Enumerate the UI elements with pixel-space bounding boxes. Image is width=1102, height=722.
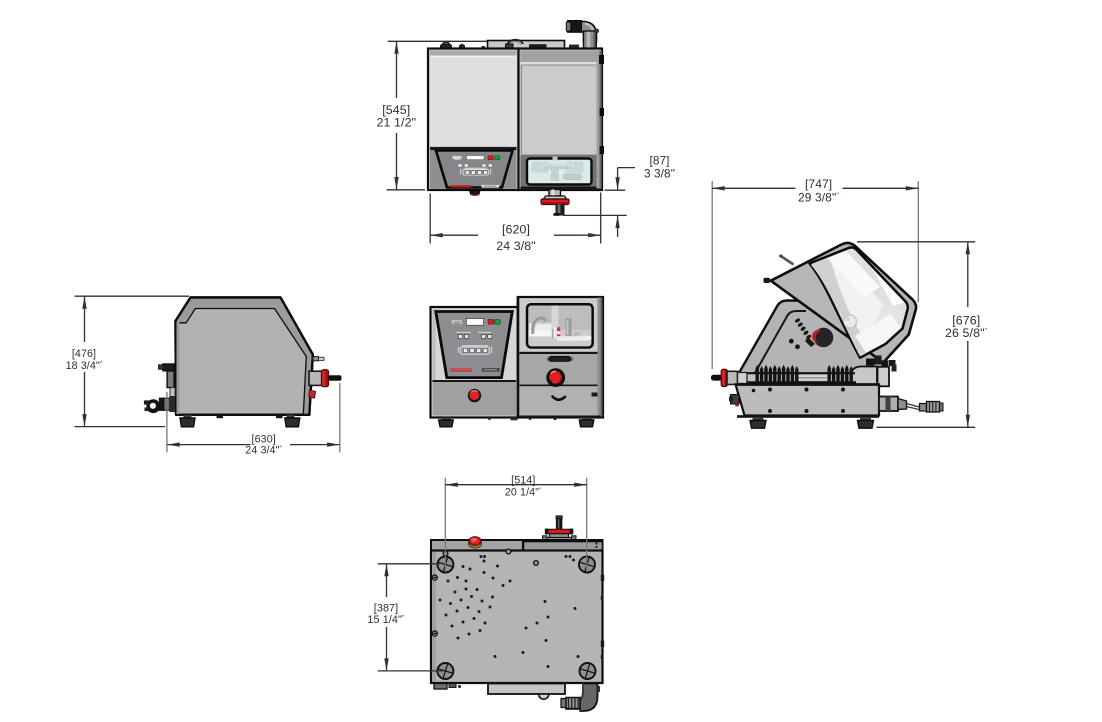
svg-text:[87]: [87] xyxy=(649,153,669,167)
svg-text:[387]: [387] xyxy=(374,603,399,615)
svg-text:20 1/4"”: 20 1/4"” xyxy=(505,485,542,498)
svg-text:[476]: [476] xyxy=(72,348,96,360)
svg-text:3 3/8": 3 3/8" xyxy=(644,167,675,181)
svg-text:24 3/8": 24 3/8" xyxy=(496,239,536,253)
svg-text:29 3/8"”: 29 3/8"” xyxy=(798,190,839,204)
svg-text:[747]: [747] xyxy=(805,177,832,191)
svg-text:[514]: [514] xyxy=(511,474,535,486)
svg-text:21 1/2": 21 1/2" xyxy=(377,115,417,129)
svg-text:24 3/4"”: 24 3/4"” xyxy=(245,443,282,456)
svg-text:15 1/4"”: 15 1/4"” xyxy=(367,613,405,626)
svg-text:18 3/4"”: 18 3/4"” xyxy=(66,359,103,372)
svg-text:26 5/8"”: 26 5/8"” xyxy=(945,326,988,340)
svg-text:[620]: [620] xyxy=(502,223,530,237)
